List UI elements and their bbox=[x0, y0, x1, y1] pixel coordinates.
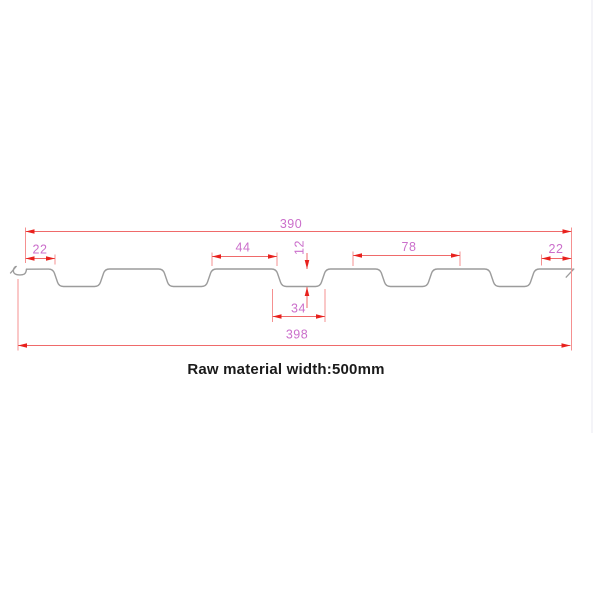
dimension-text: 78 bbox=[402, 240, 417, 254]
dimension-arrow bbox=[273, 314, 282, 319]
dimension-arrow bbox=[451, 253, 460, 258]
dimension-text: 12 bbox=[293, 240, 307, 255]
dimension-arrow bbox=[353, 253, 362, 258]
dimension-text: 22 bbox=[549, 242, 564, 256]
raw-material-width-label: Raw material width:500mm bbox=[187, 361, 384, 378]
right-cut-tick bbox=[566, 269, 574, 278]
dimension-arrow bbox=[26, 229, 35, 234]
dimension-arrow bbox=[562, 343, 571, 348]
dimension-arrow bbox=[26, 256, 35, 261]
profile-outline bbox=[27, 269, 573, 287]
dimension-arrow bbox=[563, 256, 572, 261]
dimension-arrow bbox=[563, 229, 572, 234]
dimension-arrow bbox=[305, 260, 310, 269]
dimension-arrow bbox=[542, 256, 551, 261]
dimension-arrow bbox=[212, 254, 221, 259]
profile-drawing: 390224478223439812 bbox=[0, 0, 600, 600]
dimension-arrow bbox=[46, 256, 55, 261]
dimension-arrow bbox=[268, 254, 277, 259]
dimension-arrow bbox=[305, 287, 310, 296]
dimension-text: 22 bbox=[33, 243, 48, 257]
dimension-text: 398 bbox=[286, 328, 308, 342]
drawing-canvas: 390224478223439812 Raw material width:50… bbox=[0, 0, 600, 600]
dimension-text: 34 bbox=[291, 302, 306, 316]
dimension-arrow bbox=[316, 314, 325, 319]
dimension-text: 44 bbox=[236, 241, 251, 255]
dimension-arrow bbox=[18, 343, 27, 348]
dimension-text: 390 bbox=[280, 217, 302, 231]
